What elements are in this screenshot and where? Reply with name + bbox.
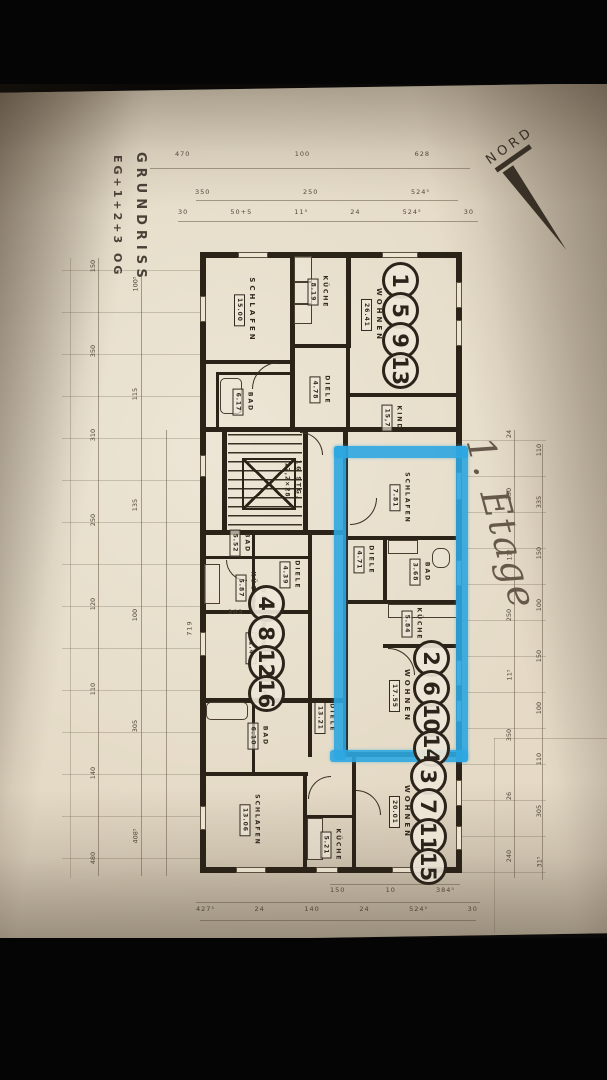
window [456,282,462,308]
north-arrow-blade [503,165,571,254]
room-area: 7.81 [390,485,401,512]
dimension-chain-top1: 470100628 [175,150,430,158]
room-name: SCHLAFEN [254,794,261,845]
window [200,806,206,830]
dimension-label: 150 [535,650,543,662]
wall [200,772,308,776]
dimension-label: 335 [535,495,543,507]
dimension-label: 24 [350,208,360,216]
dimension-label: 140 [304,905,319,913]
room-label-kueche-blue: KÜCHE 5.84 [402,608,423,641]
dimension-line [70,258,71,878]
dimension-line [196,200,458,201]
wall [346,393,460,397]
north-arrow: NORD [462,112,607,262]
room-label-wohnen: WOHNEN 26.41 [361,288,383,342]
bottom-letterbox [0,938,607,1080]
room-area: 3.68 [410,559,421,586]
room-name: KIND [396,406,403,431]
room-label-bad-blue: BAD 3.68 [410,559,431,586]
dimension-label: 384⁵ [436,886,455,894]
dimension-label: 240 [505,850,513,862]
room-label-schlafen-blue: SCHLAFEN 7.81 [390,472,411,523]
dimension-label: 408⁵ [131,828,139,843]
dimension-label: 24 [255,905,265,913]
dimension-label: 100⁵ [131,276,139,291]
room-area: 26.41 [361,299,372,331]
wall [222,427,227,535]
unit-numbers-top: 15913 [382,262,419,389]
stair-note: 16 STG. 17,2×28 [283,459,302,500]
room-label-diele-mid: DIELE 13.21 [315,702,336,734]
window [316,867,338,873]
dimension-label: 250 [303,188,318,196]
room-label-bad: BAD 6.17 [233,389,254,416]
dimension-label: 719 [186,620,194,635]
window [238,252,268,258]
wall [346,344,350,432]
dimension-chain-bottom1: 15010384⁵ [330,886,455,894]
dimension-chain-right1: 11033515010015010011030531⁵ [532,446,546,866]
highlight-right-edge [456,446,468,762]
room-area: 5.21 [321,832,332,859]
window [200,296,206,322]
unit-numbers-left: 481216 [248,585,285,712]
dimension-label: 524⁵ [403,208,422,216]
window [236,867,266,873]
wall [200,530,348,535]
wall [200,252,206,873]
room-label-bad-left: BAD 5.52 [230,530,251,557]
room-area: 13.21 [315,702,326,734]
window [382,252,418,258]
drawing-title: GRUNDRISS [133,152,148,283]
photo-of-floorplan: GRUNDRISS EG+1+2+3 OG NORD 1. Etage 4701… [0,0,607,1080]
dimension-label: 110 [89,683,97,695]
room-area: 6.17 [233,389,244,416]
room-label-wohnen-blue: WOHNEN 17.55 [389,669,411,723]
room-name: DIELE [324,375,331,404]
dimension-label: 110 [535,753,543,765]
dimension-line [196,902,480,903]
room-name: KÜCHE [335,829,342,862]
wall [200,427,462,432]
dimension-label: 150 [535,547,543,559]
drawing-subtitle: EG+1+2+3 OG [111,155,124,277]
dimension-label: 350 [505,729,513,741]
dimension-label: 120 [89,598,97,610]
room-label-diele-blue: DIELE 4.71 [354,545,375,574]
window [456,780,462,806]
unit-numbers-bottom: 371115 [410,758,447,885]
wall [216,372,219,430]
dimension-label: 30 [464,208,474,216]
unit-number-badge: 15 [410,848,447,885]
dimension-label: 24 [505,430,513,438]
room-label-wohnen-bottom: WOHNEN 20.01 [389,785,411,839]
dimension-label: 303 [228,608,243,616]
dimension-label: 115 [131,388,139,400]
dimension-label: 11⁵ [294,208,308,216]
dimension-label: 524⁵ [411,188,430,196]
unit-numbers-middle: 261014 [413,640,450,767]
window [456,320,462,346]
window [200,632,206,656]
dimension-label: 310 [89,429,97,441]
dimension-label: 350 [89,344,97,356]
dimension-label: 10 [386,886,396,894]
wall [292,344,350,348]
dimension-label: 135 [131,499,139,511]
room-area: 15,7 [382,405,393,432]
stair-note-line1: 16 STG. [295,460,302,500]
room-name: KÜCHE [322,276,329,309]
bath-fixture [388,540,418,554]
room-name: SCHLAFEN [248,277,256,342]
room-name: DIELE [368,545,375,574]
room-area: 5.52 [230,530,241,557]
room-label-kueche-bottom: KÜCHE 5.21 [321,829,342,862]
room-name: BAD [247,392,254,412]
room-area: 5.87 [236,575,247,602]
dimension-label: 24 [359,905,369,913]
highlight-left-edge [334,446,346,760]
wall [308,530,312,757]
dimension-label: 50+5 [230,208,252,216]
room-area: 20.01 [389,796,400,828]
room-area: 17.55 [389,680,400,712]
dimension-line [166,430,167,876]
room-label-bad-bottom: BAD 6.10 [248,723,269,750]
bathtub [206,702,248,720]
dimension-chain-top2: 350250524⁵ [195,188,430,196]
room-name: SCHLAFEN [404,472,411,523]
stair-note-line2: 17,2×28 [283,459,292,500]
room-area: 15.00 [234,294,245,326]
room-area: 4.78 [310,377,321,404]
highlight-top-edge [334,446,468,458]
dimension-label: 30 [178,208,188,216]
dimension-label: 140 [89,767,97,779]
unit-number-badge: 13 [382,352,419,389]
dimension-label: 427⁵ [196,905,215,913]
dimension-label: 11⁵ [505,670,513,681]
room-area: 13.06 [240,804,251,836]
room-area: 5.84 [402,611,413,638]
room-area: 8.19 [308,279,319,306]
dimension-chain-left2: 100⁵115135100305408⁵ [128,280,142,840]
dimension-label: 470 [175,150,190,158]
dimension-line [150,168,470,169]
room-name: WOHNEN [403,669,411,723]
dimension-label: 31⁵ [535,857,543,868]
room-label-kind: KIND 15,7 [382,405,403,432]
wall [383,536,387,604]
dimension-label: 524⁵ [409,905,428,913]
room-label-kueche: KÜCHE 8.19 [308,276,329,309]
room-label-schlafen: SCHLAFEN 15.00 [234,277,256,342]
dimension-line [178,221,478,222]
dimension-label: 305 [131,719,139,731]
room-name: KÜCHE [416,608,423,641]
toilet [432,548,450,568]
dimension-label: 305 [535,804,543,816]
kitchen-counter [388,604,458,618]
dimension-label: 100 [295,150,310,158]
room-area: 6.10 [248,723,259,750]
dimension-label: 480 [89,852,97,864]
dimension-label: 628 [415,150,430,158]
room-name: DIELE [294,560,301,589]
top-letterbox [0,0,607,84]
kitchen-fixture [204,564,220,604]
window [456,826,462,850]
window [200,455,206,477]
unit-number-badge: 16 [248,675,285,712]
room-label-diele: DIELE 4.78 [310,375,331,404]
dimension-chain-bottom2: 427⁵2414024524⁵30 [196,905,478,913]
neighbor-outline [494,738,495,933]
dimension-label: 100 [131,609,139,621]
dimension-line [200,920,476,921]
dimension-label: 100 [535,701,543,713]
room-name: BAD [244,533,251,553]
dimension-chain-top3: 3050+511⁵24524⁵30 [178,208,474,216]
wall [290,360,295,432]
room-name: BAD [424,562,431,582]
dimension-label: 150 [330,886,345,894]
dimension-label: 250 [89,513,97,525]
dimension-label: 26 [505,792,513,800]
room-area: 4.71 [354,547,365,574]
dimension-label: 30 [468,905,478,913]
dimension-label: 110 [535,444,543,456]
dimension-label: 150 [89,260,97,272]
dimension-chain-left1: 150350310250120110140480 [86,262,100,862]
room-name: BAD [262,726,269,746]
wall [200,360,295,364]
wall [346,252,351,348]
dimension-label: 350 [195,188,210,196]
room-label-schlafen-bottom: SCHLAFEN 13.06 [240,794,261,845]
